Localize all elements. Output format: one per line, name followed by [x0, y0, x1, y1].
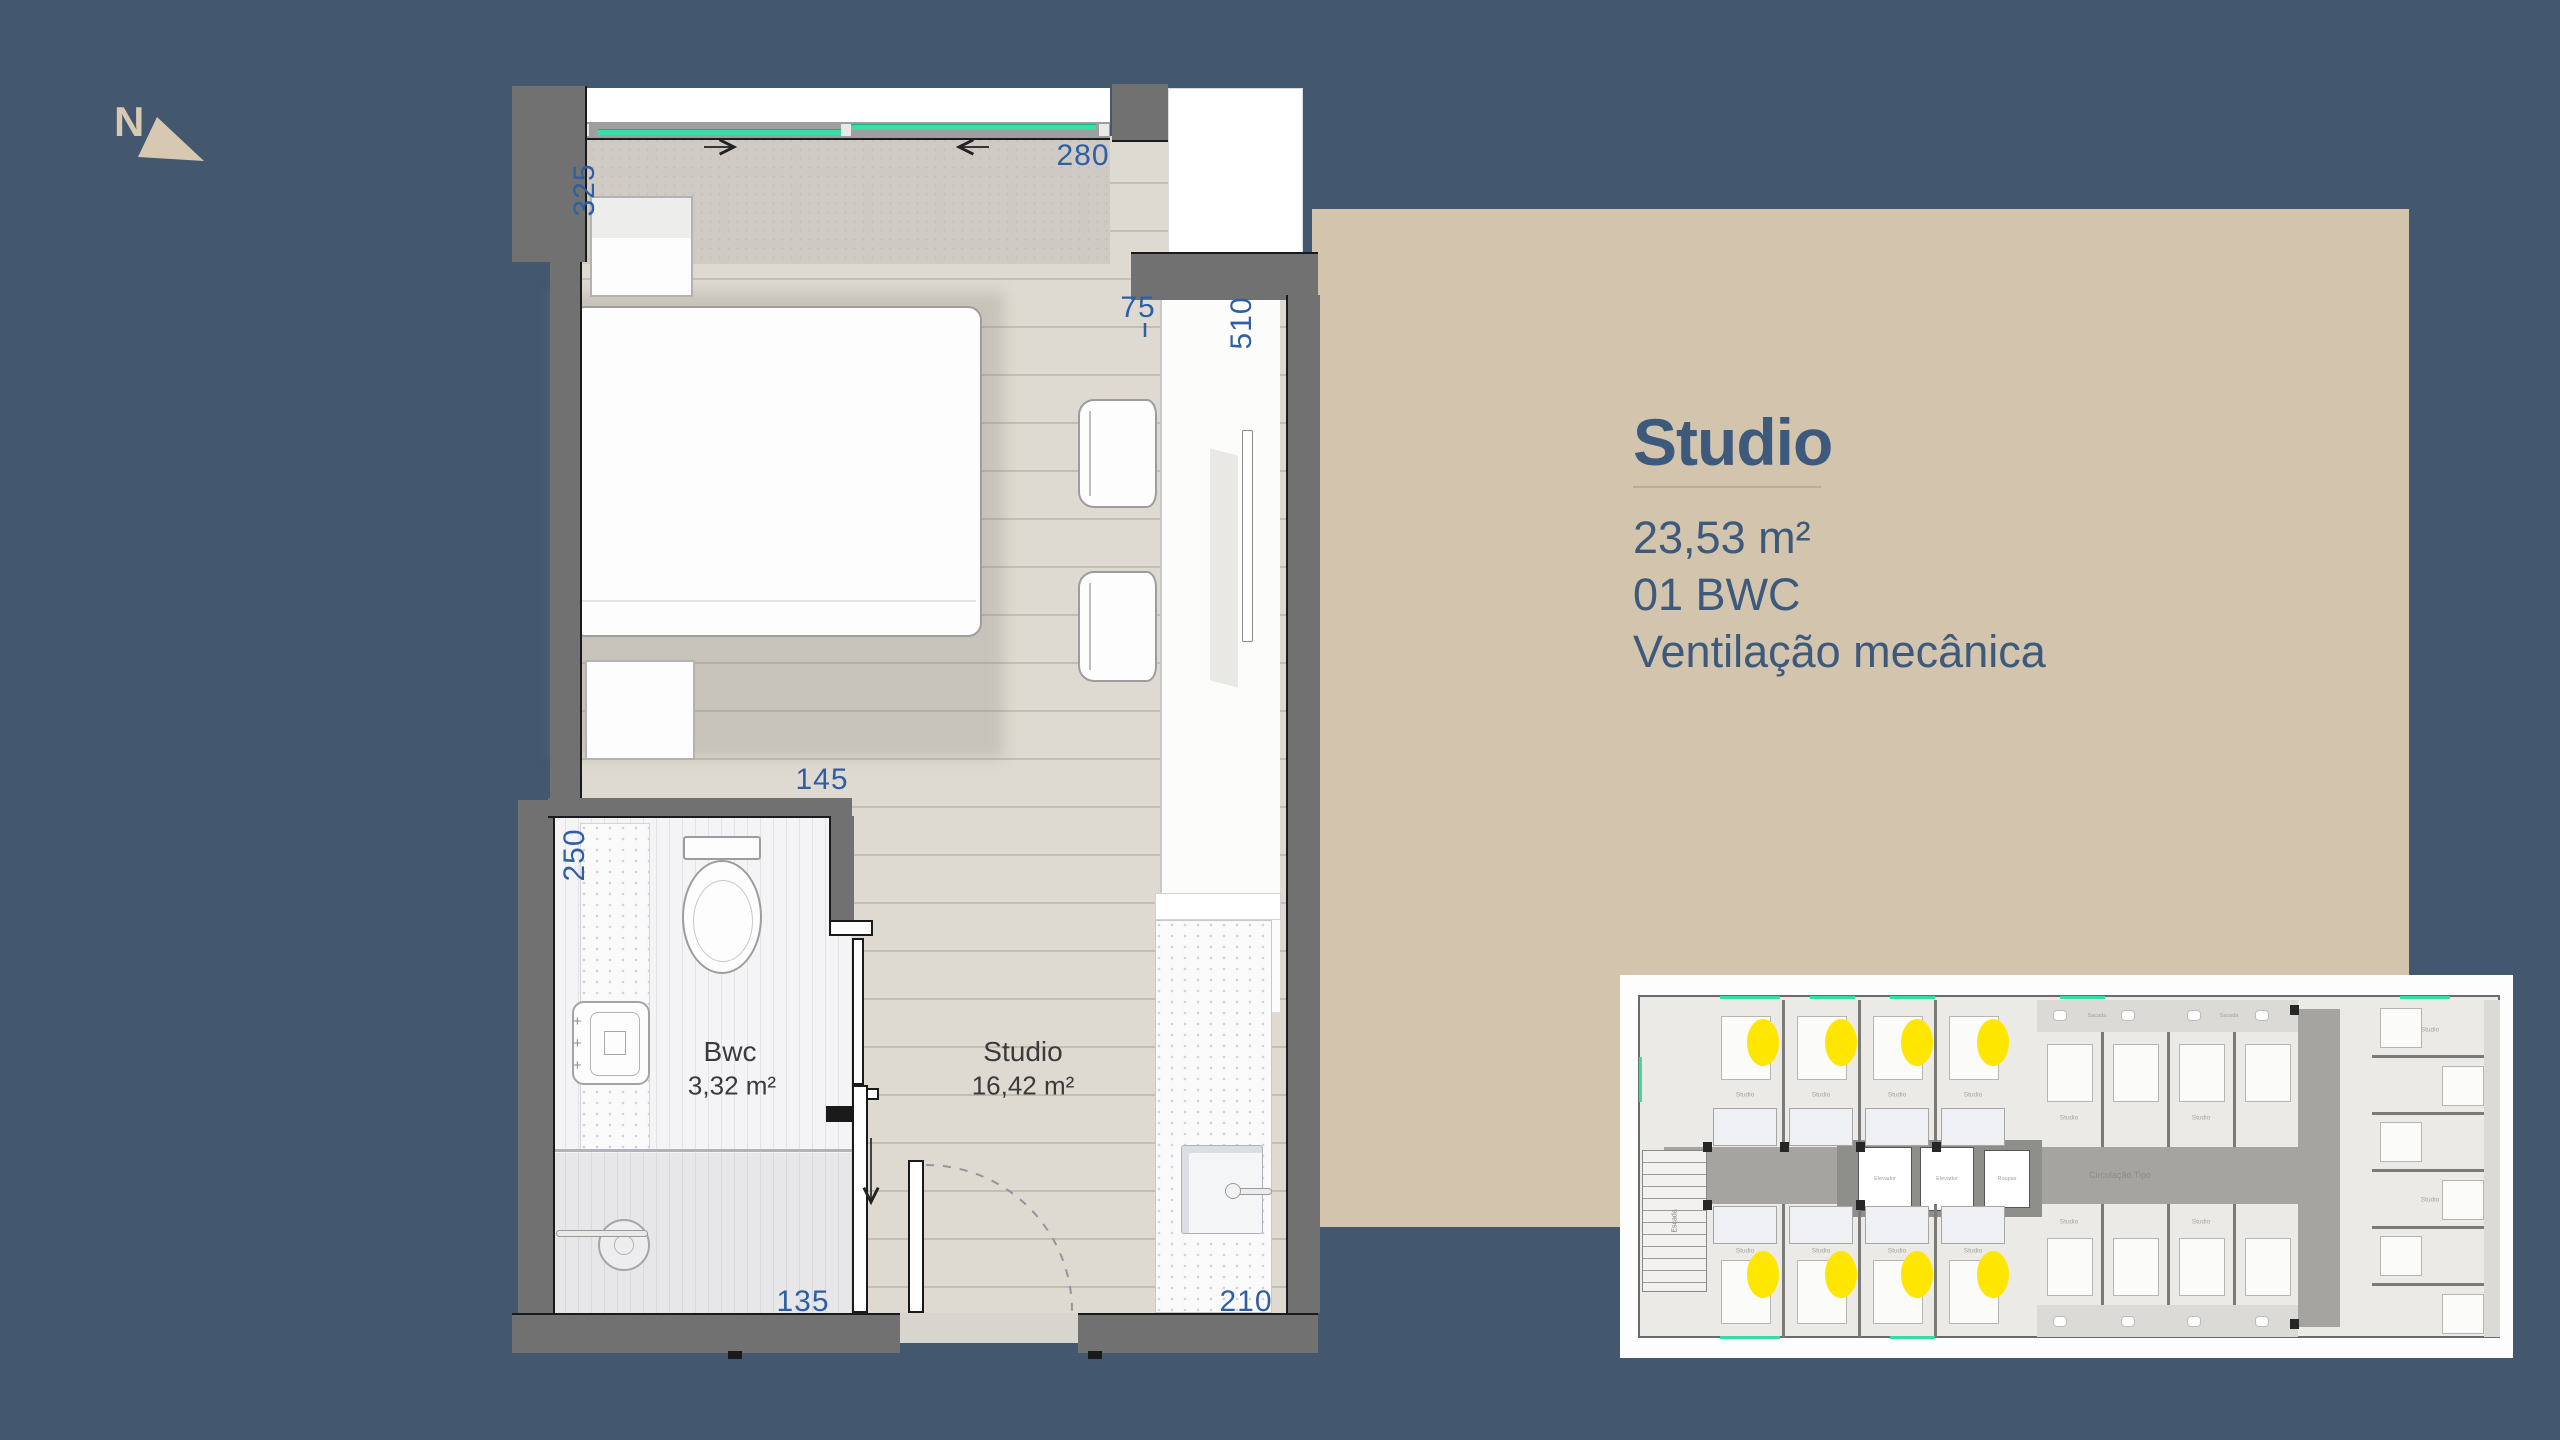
linen-label: Roupas [1998, 1176, 2017, 1182]
stairs: Escada [1642, 1150, 1707, 1292]
unit-highlight-marker [1825, 1019, 1857, 1066]
door-swing-arc [926, 1165, 1072, 1311]
stairs-label: Escada [1672, 1209, 1679, 1232]
corridor-vertical [2298, 1009, 2340, 1327]
key-plan-building: Elevador Elevador Roupas Circulação Tipo… [1638, 995, 2500, 1338]
unit-specs: 23,53 m² 01 BWC Ventilação mecânica [1633, 509, 2046, 680]
unit-highlight-marker [1901, 1019, 1933, 1066]
unit-highlight-marker [1825, 1251, 1857, 1298]
dim-kitchen-width: 210 [1219, 1285, 1272, 1319]
slide: { "page": { "background": "#43576F" }, "… [0, 0, 2560, 1440]
dim-nook-depth: 75 [1120, 291, 1155, 325]
floor-plan: +++ [505, 80, 1325, 1360]
elevator-label: Elevador [1874, 1176, 1896, 1182]
room-name-bwc: Bwc [704, 1036, 757, 1068]
unit-highlight-marker [1977, 1251, 2009, 1298]
north-indicator: N [100, 90, 230, 180]
unit-highlight-marker [1901, 1251, 1933, 1298]
room-area-studio: 16,42 m² [972, 1071, 1075, 1102]
key-plan: Elevador Elevador Roupas Circulação Tipo… [1620, 975, 2513, 1358]
dim-bath-width: 145 [795, 763, 848, 797]
dim-bath-height: 250 [558, 828, 592, 881]
unit-block-upper-center: Sacada Sacada Studio Studio [2037, 1000, 2298, 1147]
title-underline [1633, 486, 1821, 488]
room-name-studio: Studio [983, 1036, 1062, 1068]
spec-area: 23,53 m² [1633, 509, 2046, 566]
elevator-cab: Elevador [1858, 1147, 1912, 1211]
spec-bwc: 01 BWC [1633, 566, 2046, 623]
elevator-cab: Elevador [1920, 1147, 1974, 1211]
unit-block-right-wing: Studio Studio [2372, 1000, 2500, 1337]
unit-highlight-marker [1747, 1019, 1779, 1066]
room-area-bwc: 3,32 m² [688, 1071, 776, 1102]
circulation-label: Circulação Tipo [2089, 1170, 2151, 1180]
unit-title: Studio [1633, 404, 1832, 480]
dim-shower-width: 135 [776, 1285, 829, 1319]
unit-block-upper-left: Studio Studio Studio Studio [1707, 1000, 2012, 1147]
dim-counter-length: 510 [1225, 296, 1259, 349]
dim-top-width: 280 [1056, 139, 1109, 173]
spec-ventilation: Ventilação mecânica [1633, 623, 2046, 680]
unit-highlight-marker [1977, 1019, 2009, 1066]
plan-annotations [505, 80, 1325, 1360]
unit-highlight-marker [1747, 1251, 1779, 1298]
elevator-label: Elevador [1936, 1176, 1958, 1182]
unit-block-lower-center: Studio Studio [2037, 1204, 2298, 1337]
north-arrow-icon [100, 90, 230, 180]
linen-room: Roupas [1984, 1150, 2030, 1208]
dim-left-height: 325 [568, 163, 602, 216]
